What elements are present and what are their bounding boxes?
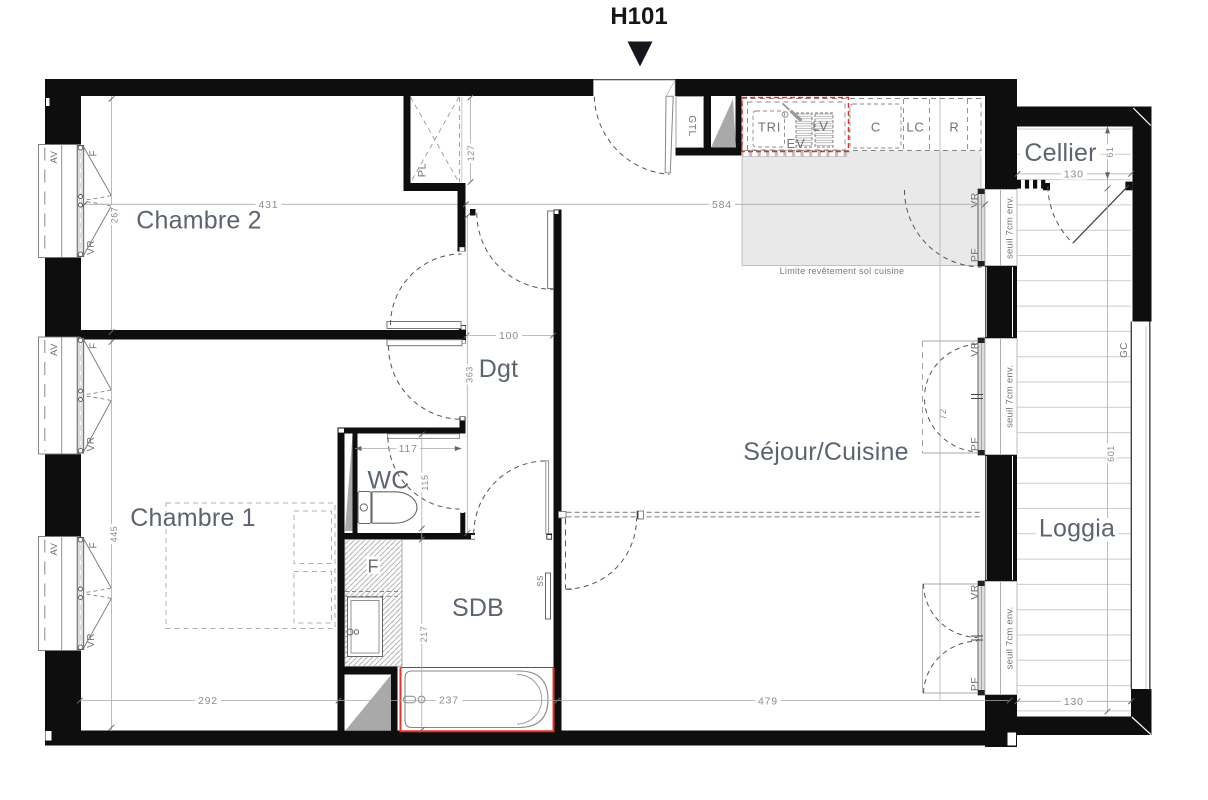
svg-text:Chambre 2: Chambre 2 [136, 207, 261, 235]
svg-text:Cellier: Cellier [1024, 139, 1096, 167]
svg-text:seuil 7cm env.: seuil 7cm env. [1005, 365, 1016, 428]
svg-text:VR: VR [86, 240, 97, 255]
svg-text:363: 363 [464, 366, 474, 383]
svg-text:117: 117 [399, 443, 418, 455]
svg-text:AV: AV [49, 542, 60, 555]
svg-text:100: 100 [499, 330, 519, 342]
svg-text:AV: AV [49, 150, 60, 163]
svg-text:61: 61 [1105, 146, 1115, 157]
svg-text:601: 601 [1106, 445, 1116, 462]
svg-text:TRI: TRI [758, 120, 781, 135]
svg-text:PF: PF [969, 248, 981, 262]
svg-text:GTL: GTL [686, 115, 697, 136]
svg-text:Chambre 1: Chambre 1 [130, 504, 255, 532]
svg-text:EV: EV [787, 136, 806, 151]
svg-text:VR: VR [86, 437, 97, 452]
svg-text:VR: VR [969, 584, 981, 599]
svg-text:584: 584 [712, 199, 732, 211]
svg-text:LV: LV [812, 119, 829, 134]
svg-text:127: 127 [466, 145, 476, 162]
svg-text:130: 130 [1064, 168, 1084, 180]
svg-text:292: 292 [198, 695, 218, 707]
svg-text:267: 267 [110, 207, 120, 224]
svg-text:R: R [949, 120, 959, 135]
svg-text:PL: PL [417, 163, 429, 177]
svg-text:seuil 7cm env.: seuil 7cm env. [1005, 196, 1016, 259]
svg-text:115: 115 [420, 474, 430, 490]
svg-text:F: F [89, 542, 100, 548]
svg-text:GC: GC [1119, 342, 1130, 358]
svg-text:LC: LC [906, 120, 924, 135]
svg-text:SDB: SDB [452, 594, 504, 622]
svg-text:F: F [89, 150, 100, 156]
svg-text:F: F [368, 557, 379, 577]
svg-text:445: 445 [109, 526, 119, 543]
svg-text:Loggia: Loggia [1039, 515, 1115, 543]
svg-text:VR: VR [969, 341, 981, 356]
svg-text:seuil 7cm env.: seuil 7cm env. [1005, 607, 1016, 670]
svg-text:237: 237 [439, 694, 459, 706]
svg-text:72: 72 [938, 408, 948, 419]
svg-text:VR: VR [969, 192, 981, 207]
svg-text:PF: PF [969, 437, 981, 451]
svg-text:Dgt: Dgt [479, 355, 519, 383]
svg-text:WC: WC [367, 467, 409, 495]
svg-text:SS: SS [536, 575, 545, 586]
svg-text:H101: H101 [610, 3, 667, 30]
svg-text:479: 479 [758, 696, 778, 708]
svg-text:F: F [89, 343, 100, 349]
svg-text:VR: VR [86, 633, 97, 648]
svg-text:Limite revêtement sol cuisine: Limite revêtement sol cuisine [780, 266, 905, 276]
svg-text:PF: PF [969, 677, 981, 691]
svg-text:217: 217 [419, 626, 429, 643]
svg-text:Séjour/Cuisine: Séjour/Cuisine [743, 438, 908, 466]
svg-text:AV: AV [49, 343, 60, 356]
svg-text:130: 130 [1064, 696, 1084, 708]
svg-text:C: C [871, 120, 881, 135]
